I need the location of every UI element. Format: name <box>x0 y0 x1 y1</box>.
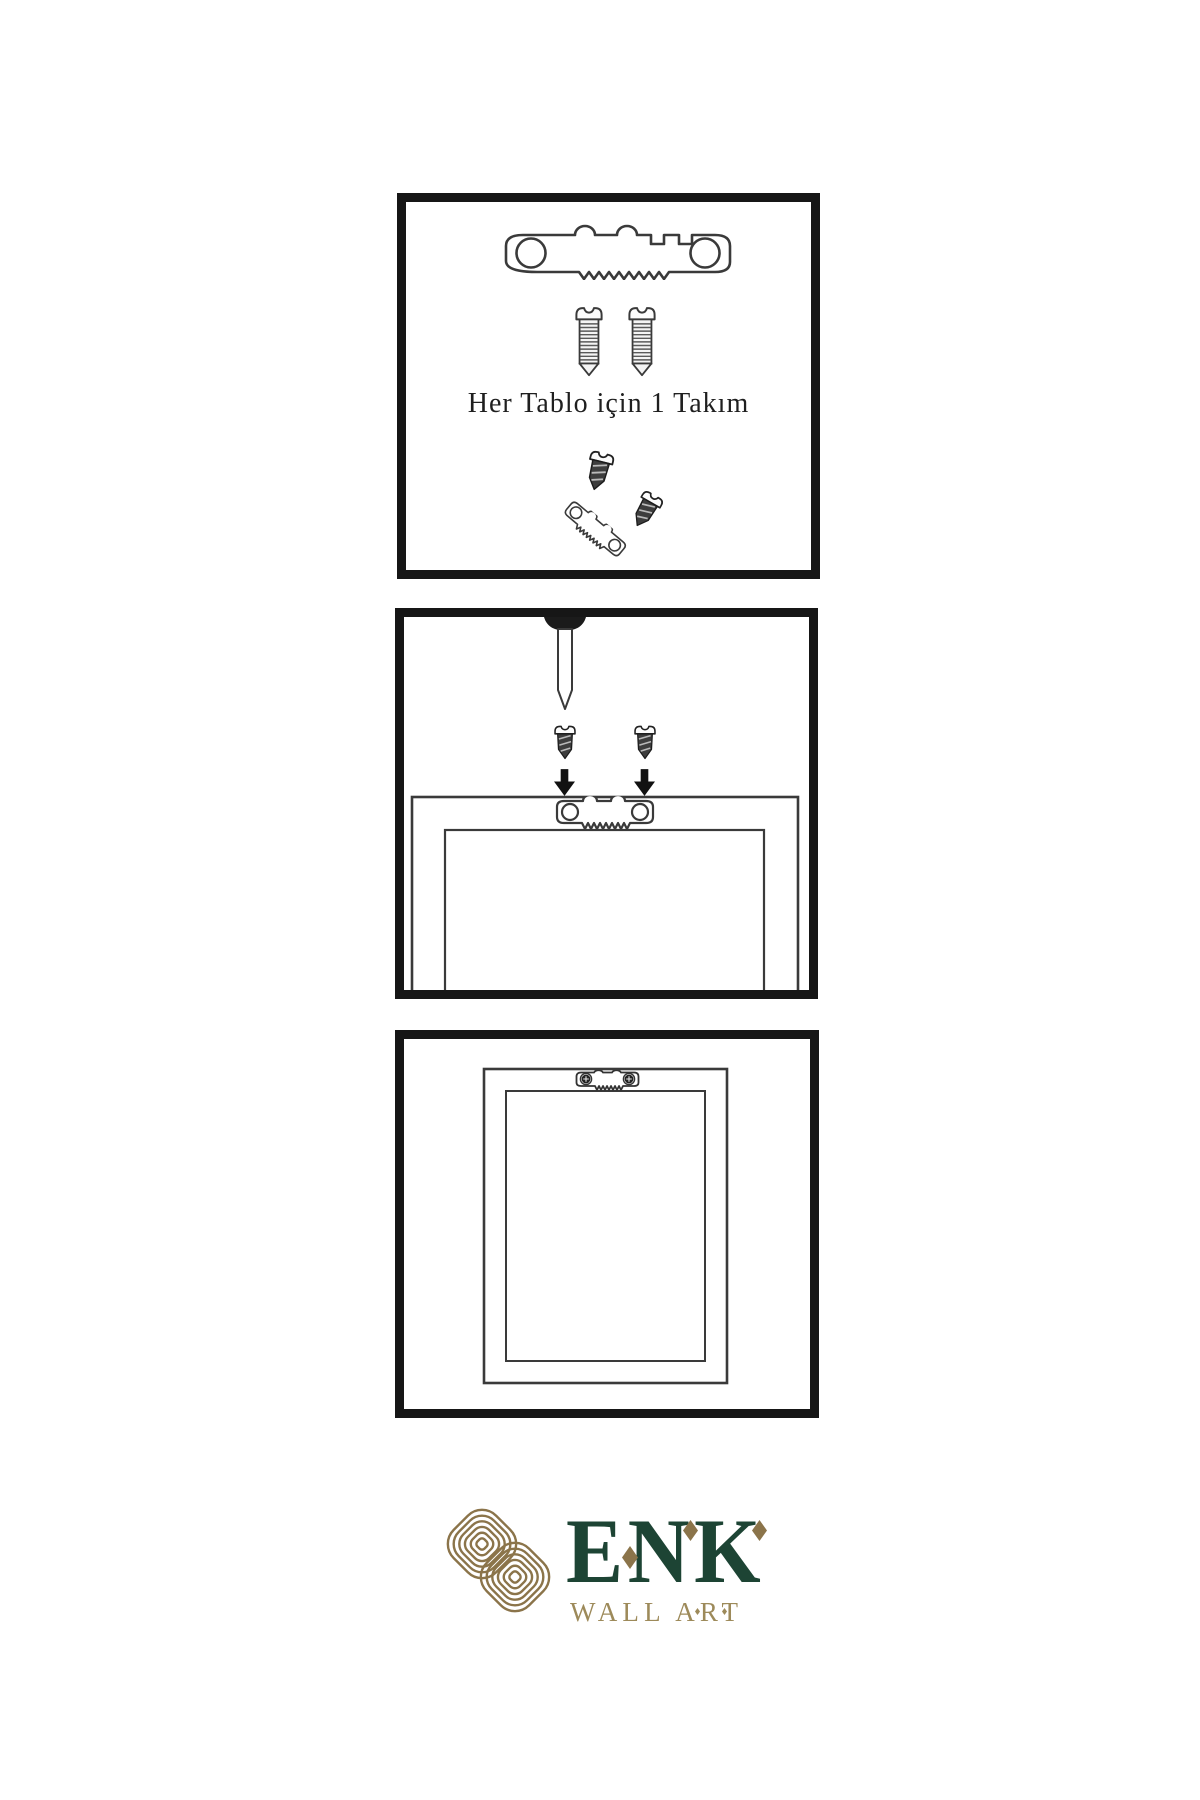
mounting-graphic <box>404 617 809 990</box>
sawtooth-hanger-icon <box>561 497 630 560</box>
panel-mounting-steps <box>395 608 818 999</box>
wall-nail-icon <box>544 617 586 709</box>
kit-caption: Her Tablo için 1 Takım <box>406 388 811 420</box>
hanger-assembly-icon <box>561 451 664 561</box>
brand-wordmark: ENK <box>566 1505 796 1597</box>
screw-icon <box>555 726 575 758</box>
panel-hardware-kit: Her Tablo için 1 Takım <box>397 193 820 579</box>
screw-icon <box>628 490 664 531</box>
frame-inner-outline <box>506 1091 705 1361</box>
screw-icon <box>629 308 654 375</box>
hardware-kit-graphic <box>406 202 811 570</box>
sawtooth-hanger-icon <box>557 795 653 829</box>
screw-icon <box>635 726 655 758</box>
knot-logo-icon <box>437 1498 560 1623</box>
instruction-sheet: Her Tablo için 1 Takım <box>0 0 1200 1800</box>
down-arrow-icon <box>554 769 575 796</box>
brand-text: ENK <box>566 1505 765 1597</box>
frame-inner-outline <box>445 830 764 990</box>
screw-icon <box>583 451 614 492</box>
brand-subtitle: WALL ART <box>570 1597 743 1628</box>
panel-hung-frame <box>395 1030 819 1418</box>
sawtooth-hanger-icon <box>506 226 730 279</box>
brand-logo: ENK WALL ART <box>437 1496 797 1636</box>
hung-frame-graphic <box>404 1039 810 1409</box>
screw-icon <box>576 308 601 375</box>
down-arrow-icon <box>634 769 655 796</box>
